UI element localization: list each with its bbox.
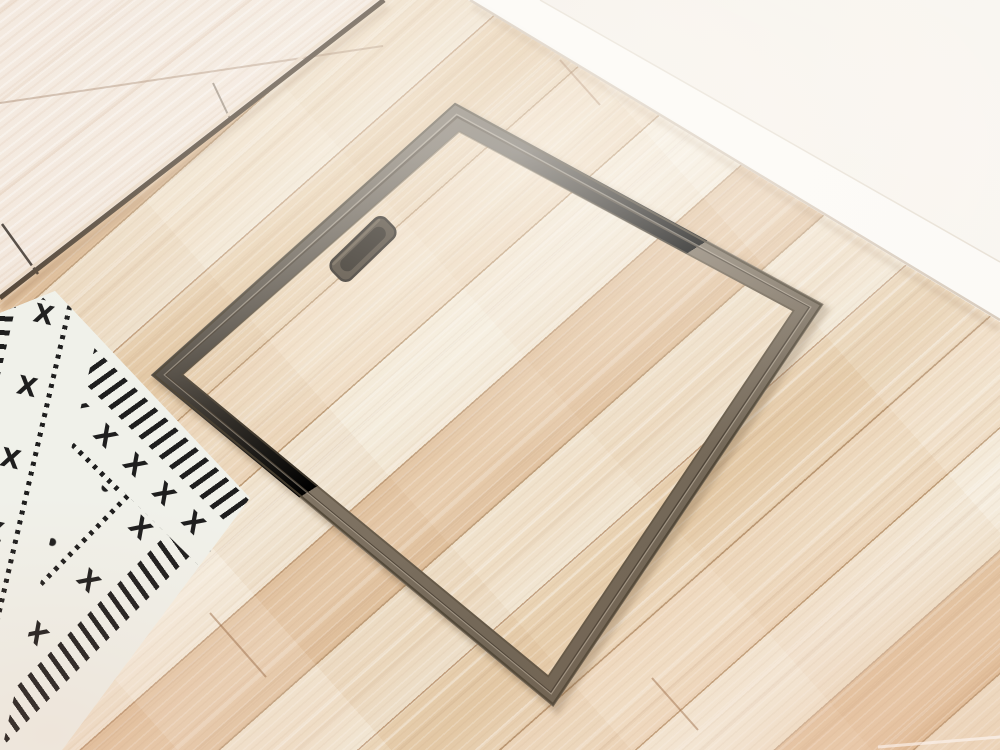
hatch-outer-frame-edge xyxy=(154,104,821,704)
floor-highlight-streak xyxy=(878,737,1000,747)
hatch-gap-line xyxy=(168,118,807,690)
hatch-lid-frame xyxy=(175,125,800,684)
baseboard-top-edge xyxy=(540,0,1000,262)
plank-butt-joint xyxy=(652,678,698,730)
room-photo: X X X X X X X X X X X X X X X X X X X X … xyxy=(0,0,1000,750)
cabinet-floor-shadow xyxy=(2,7,388,306)
hatch-frame-highlight xyxy=(165,114,811,693)
hatch-outer-frame xyxy=(160,110,815,698)
hatch-shadow xyxy=(164,115,819,703)
scene-lines xyxy=(0,0,1000,750)
cabinet-edge xyxy=(0,0,384,298)
plank-butt-joint xyxy=(210,613,266,677)
hatch-lid-inner-edge xyxy=(182,132,794,677)
